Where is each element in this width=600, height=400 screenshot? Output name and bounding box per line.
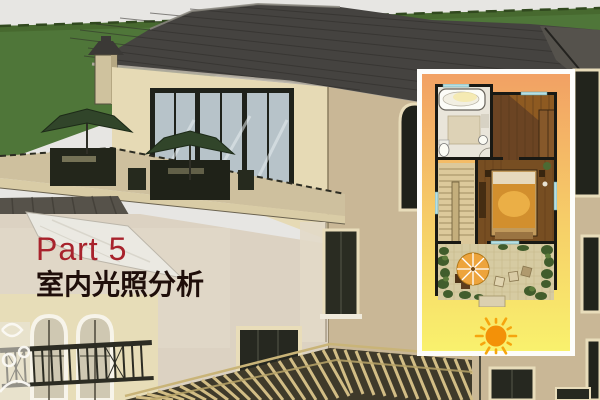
arched-window-left-2 [78, 316, 112, 400]
bedroom-upper [493, 92, 557, 160]
part-label: Part 5 [36, 233, 204, 267]
plant-icon [543, 162, 551, 170]
terrace-step [479, 296, 505, 307]
toilet-icon [439, 144, 449, 157]
sink-icon [479, 136, 488, 145]
plan-terrace [437, 244, 554, 307]
panel-gradient-background [422, 74, 570, 351]
slide: Part 5 室内光照分析 [0, 0, 600, 400]
pillar [300, 222, 326, 342]
sun-icon [473, 313, 519, 359]
staircase [438, 163, 475, 244]
caption-block: Part 5 室内光照分析 [36, 233, 204, 301]
window-tan-wall [320, 230, 362, 319]
floor-plan [435, 84, 557, 307]
window-right-top [574, 70, 600, 196]
ironwork-white [0, 322, 30, 400]
parasol-icon [457, 253, 489, 285]
bedroom [477, 160, 557, 244]
bathroom [435, 84, 493, 160]
pointer-line [479, 356, 481, 400]
floor-plan-callout-panel [417, 69, 575, 356]
slide-title: 室内光照分析 [36, 271, 204, 302]
